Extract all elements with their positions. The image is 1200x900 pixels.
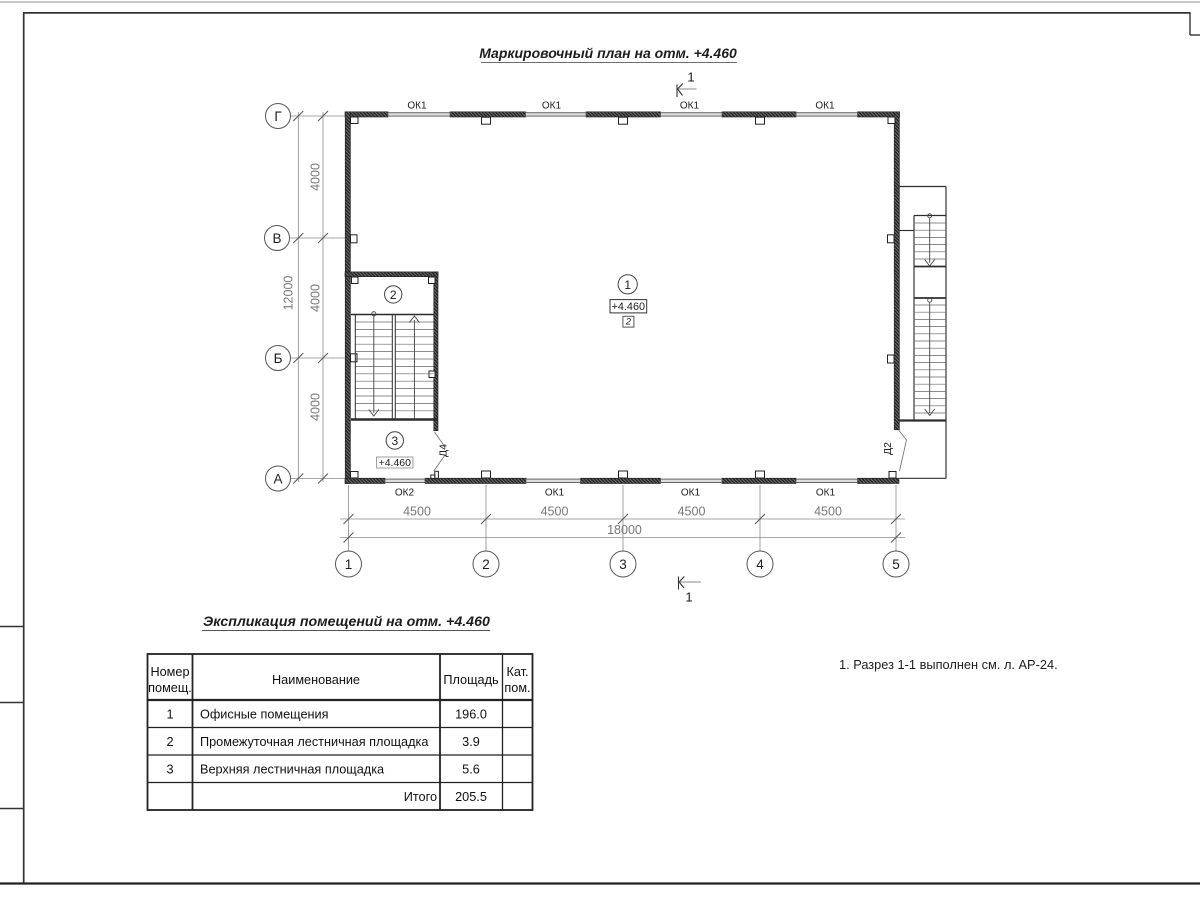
svg-text:+4.460: +4.460	[612, 301, 645, 313]
svg-text:А: А	[273, 472, 282, 487]
svg-text:ОК1: ОК1	[816, 488, 836, 499]
svg-text:ОК1: ОК1	[681, 488, 701, 499]
svg-text:2: 2	[482, 557, 490, 572]
svg-text:4500: 4500	[541, 505, 569, 519]
svg-text:1: 1	[687, 70, 694, 85]
svg-text:В: В	[272, 231, 281, 246]
svg-text:12000: 12000	[282, 276, 296, 311]
svg-text:Б: Б	[274, 351, 283, 366]
svg-text:1: 1	[624, 278, 631, 292]
svg-text:1. Разрез 1-1 выполнен см. л.: 1. Разрез 1-1 выполнен см. л. АР-24.	[839, 657, 1058, 672]
svg-text:4: 4	[756, 557, 764, 572]
svg-text:Г: Г	[274, 109, 282, 124]
svg-text:Маркировочный план на отм. +4.: Маркировочный план на отм. +4.460	[479, 45, 737, 61]
svg-text:Офисные помещения: Офисные помещения	[200, 708, 328, 722]
svg-text:2: 2	[166, 735, 173, 749]
svg-text:4000: 4000	[309, 284, 323, 312]
svg-text:4500: 4500	[678, 505, 706, 519]
svg-text:3: 3	[619, 557, 627, 572]
svg-text:3: 3	[166, 763, 173, 777]
svg-text:196.0: 196.0	[455, 708, 487, 722]
svg-text:4500: 4500	[403, 505, 431, 519]
svg-text:ОК1: ОК1	[407, 101, 427, 112]
svg-text:3.9: 3.9	[462, 735, 480, 749]
svg-text:Верхняя лестничная площадка: Верхняя лестничная площадка	[200, 763, 385, 777]
svg-text:Наименование: Наименование	[272, 673, 360, 687]
svg-text:Промежуточная лестничная площа: Промежуточная лестничная площадка	[200, 735, 429, 749]
svg-text:пом.: пом.	[504, 681, 530, 695]
svg-text:3: 3	[391, 434, 398, 448]
svg-text:Кат.: Кат.	[506, 665, 528, 679]
svg-text:Экспликация помещений на отм.: Экспликация помещений на отм. +4.460	[203, 614, 490, 630]
svg-text:Площадь: Площадь	[443, 673, 499, 687]
svg-text:4000: 4000	[309, 393, 323, 421]
svg-text:Д4: Д4	[438, 444, 450, 457]
svg-text:+4.460: +4.460	[379, 457, 412, 469]
svg-text:2: 2	[390, 288, 397, 302]
svg-text:1: 1	[685, 590, 692, 605]
svg-text:4500: 4500	[814, 505, 842, 519]
svg-text:ОК1: ОК1	[815, 101, 835, 112]
svg-text:5: 5	[892, 557, 900, 572]
svg-text:205.5: 205.5	[455, 790, 487, 804]
svg-text:ОК2: ОК2	[395, 488, 415, 499]
svg-text:4000: 4000	[309, 163, 323, 191]
svg-text:ОК1: ОК1	[542, 101, 562, 112]
svg-text:18000: 18000	[607, 523, 642, 537]
svg-text:помещ.: помещ.	[148, 681, 192, 695]
svg-text:ОК1: ОК1	[680, 101, 700, 112]
svg-text:2: 2	[625, 317, 632, 328]
svg-text:Итого: Итого	[404, 790, 437, 804]
svg-text:1: 1	[166, 708, 173, 722]
svg-text:1: 1	[345, 557, 353, 572]
svg-text:5.6: 5.6	[462, 763, 480, 777]
svg-text:Д2: Д2	[882, 442, 894, 455]
svg-text:ОК1: ОК1	[545, 488, 565, 499]
svg-text:Номер: Номер	[150, 665, 189, 679]
